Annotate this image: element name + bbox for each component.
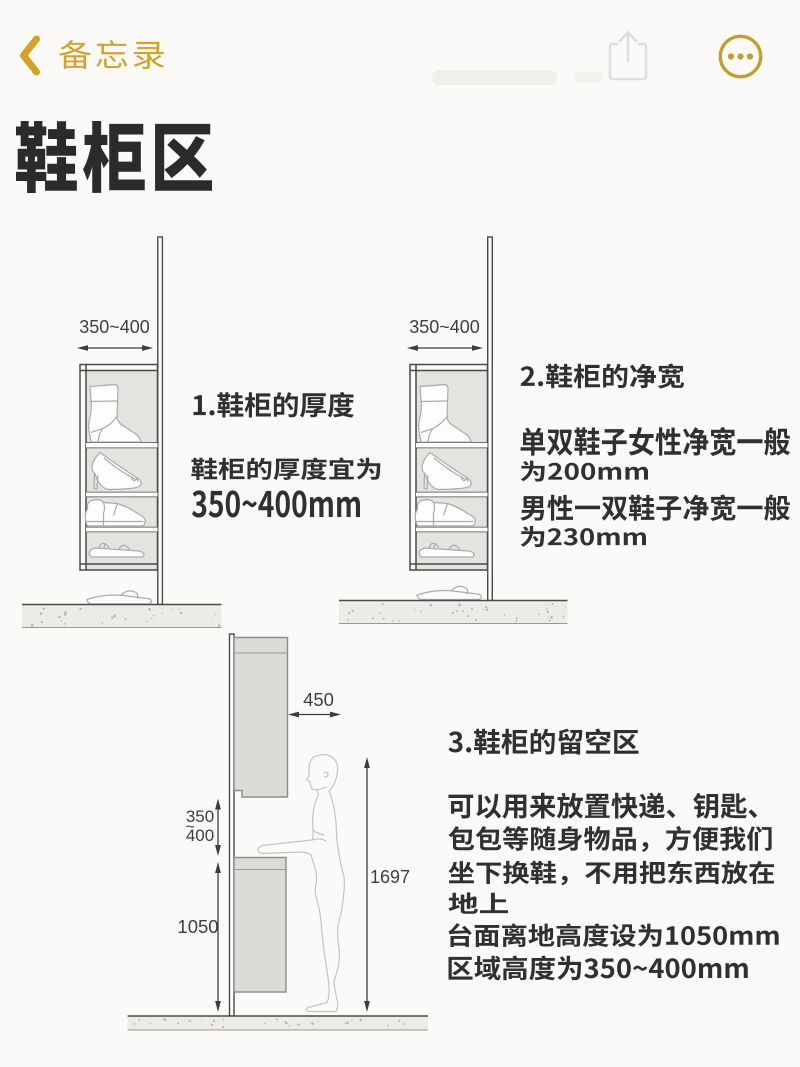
svg-text:400: 400 <box>186 826 214 845</box>
svg-text:350~400: 350~400 <box>409 317 480 337</box>
svg-text:350~400: 350~400 <box>79 317 150 337</box>
svg-text:450: 450 <box>303 689 334 710</box>
svg-text:1697: 1697 <box>370 867 410 887</box>
svg-text:1050: 1050 <box>177 916 218 937</box>
